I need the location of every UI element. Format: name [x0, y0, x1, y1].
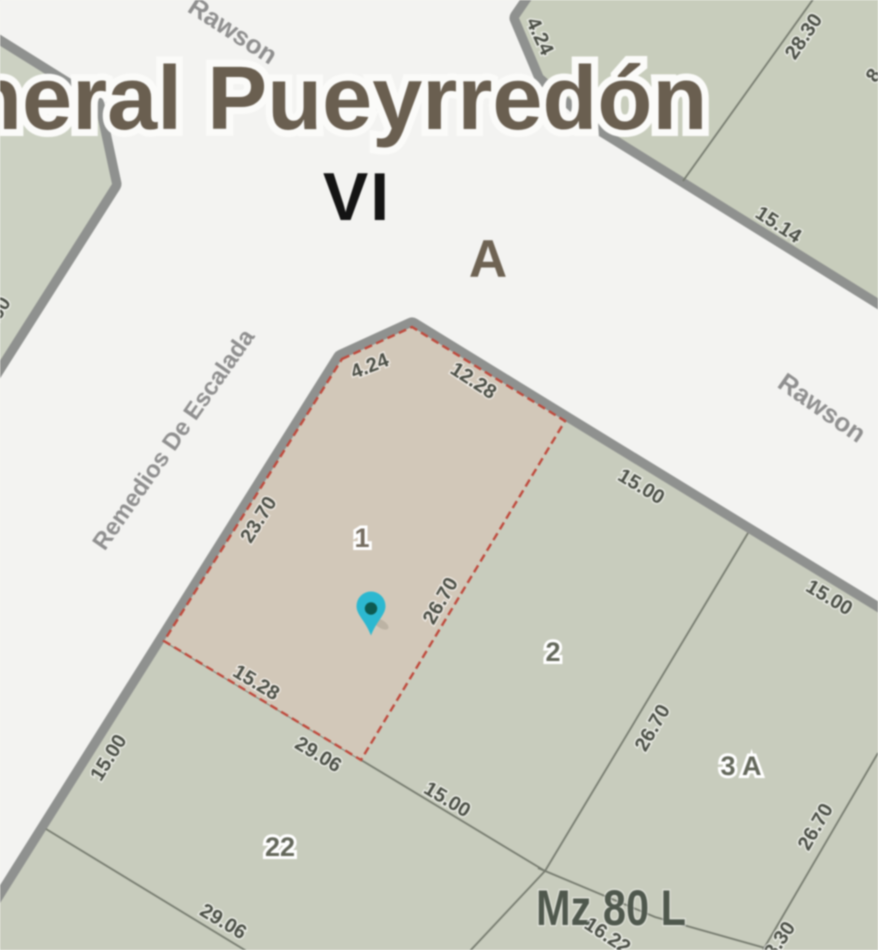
- svg-text:22: 22: [265, 832, 295, 862]
- svg-text:2: 2: [545, 637, 560, 667]
- svg-text:1: 1: [354, 523, 369, 553]
- svg-text:VI: VI: [323, 159, 391, 235]
- svg-text:3 A: 3 A: [720, 751, 761, 781]
- svg-text:A: A: [469, 230, 507, 289]
- svg-text:General Pueyrredón: General Pueyrredón: [0, 49, 707, 149]
